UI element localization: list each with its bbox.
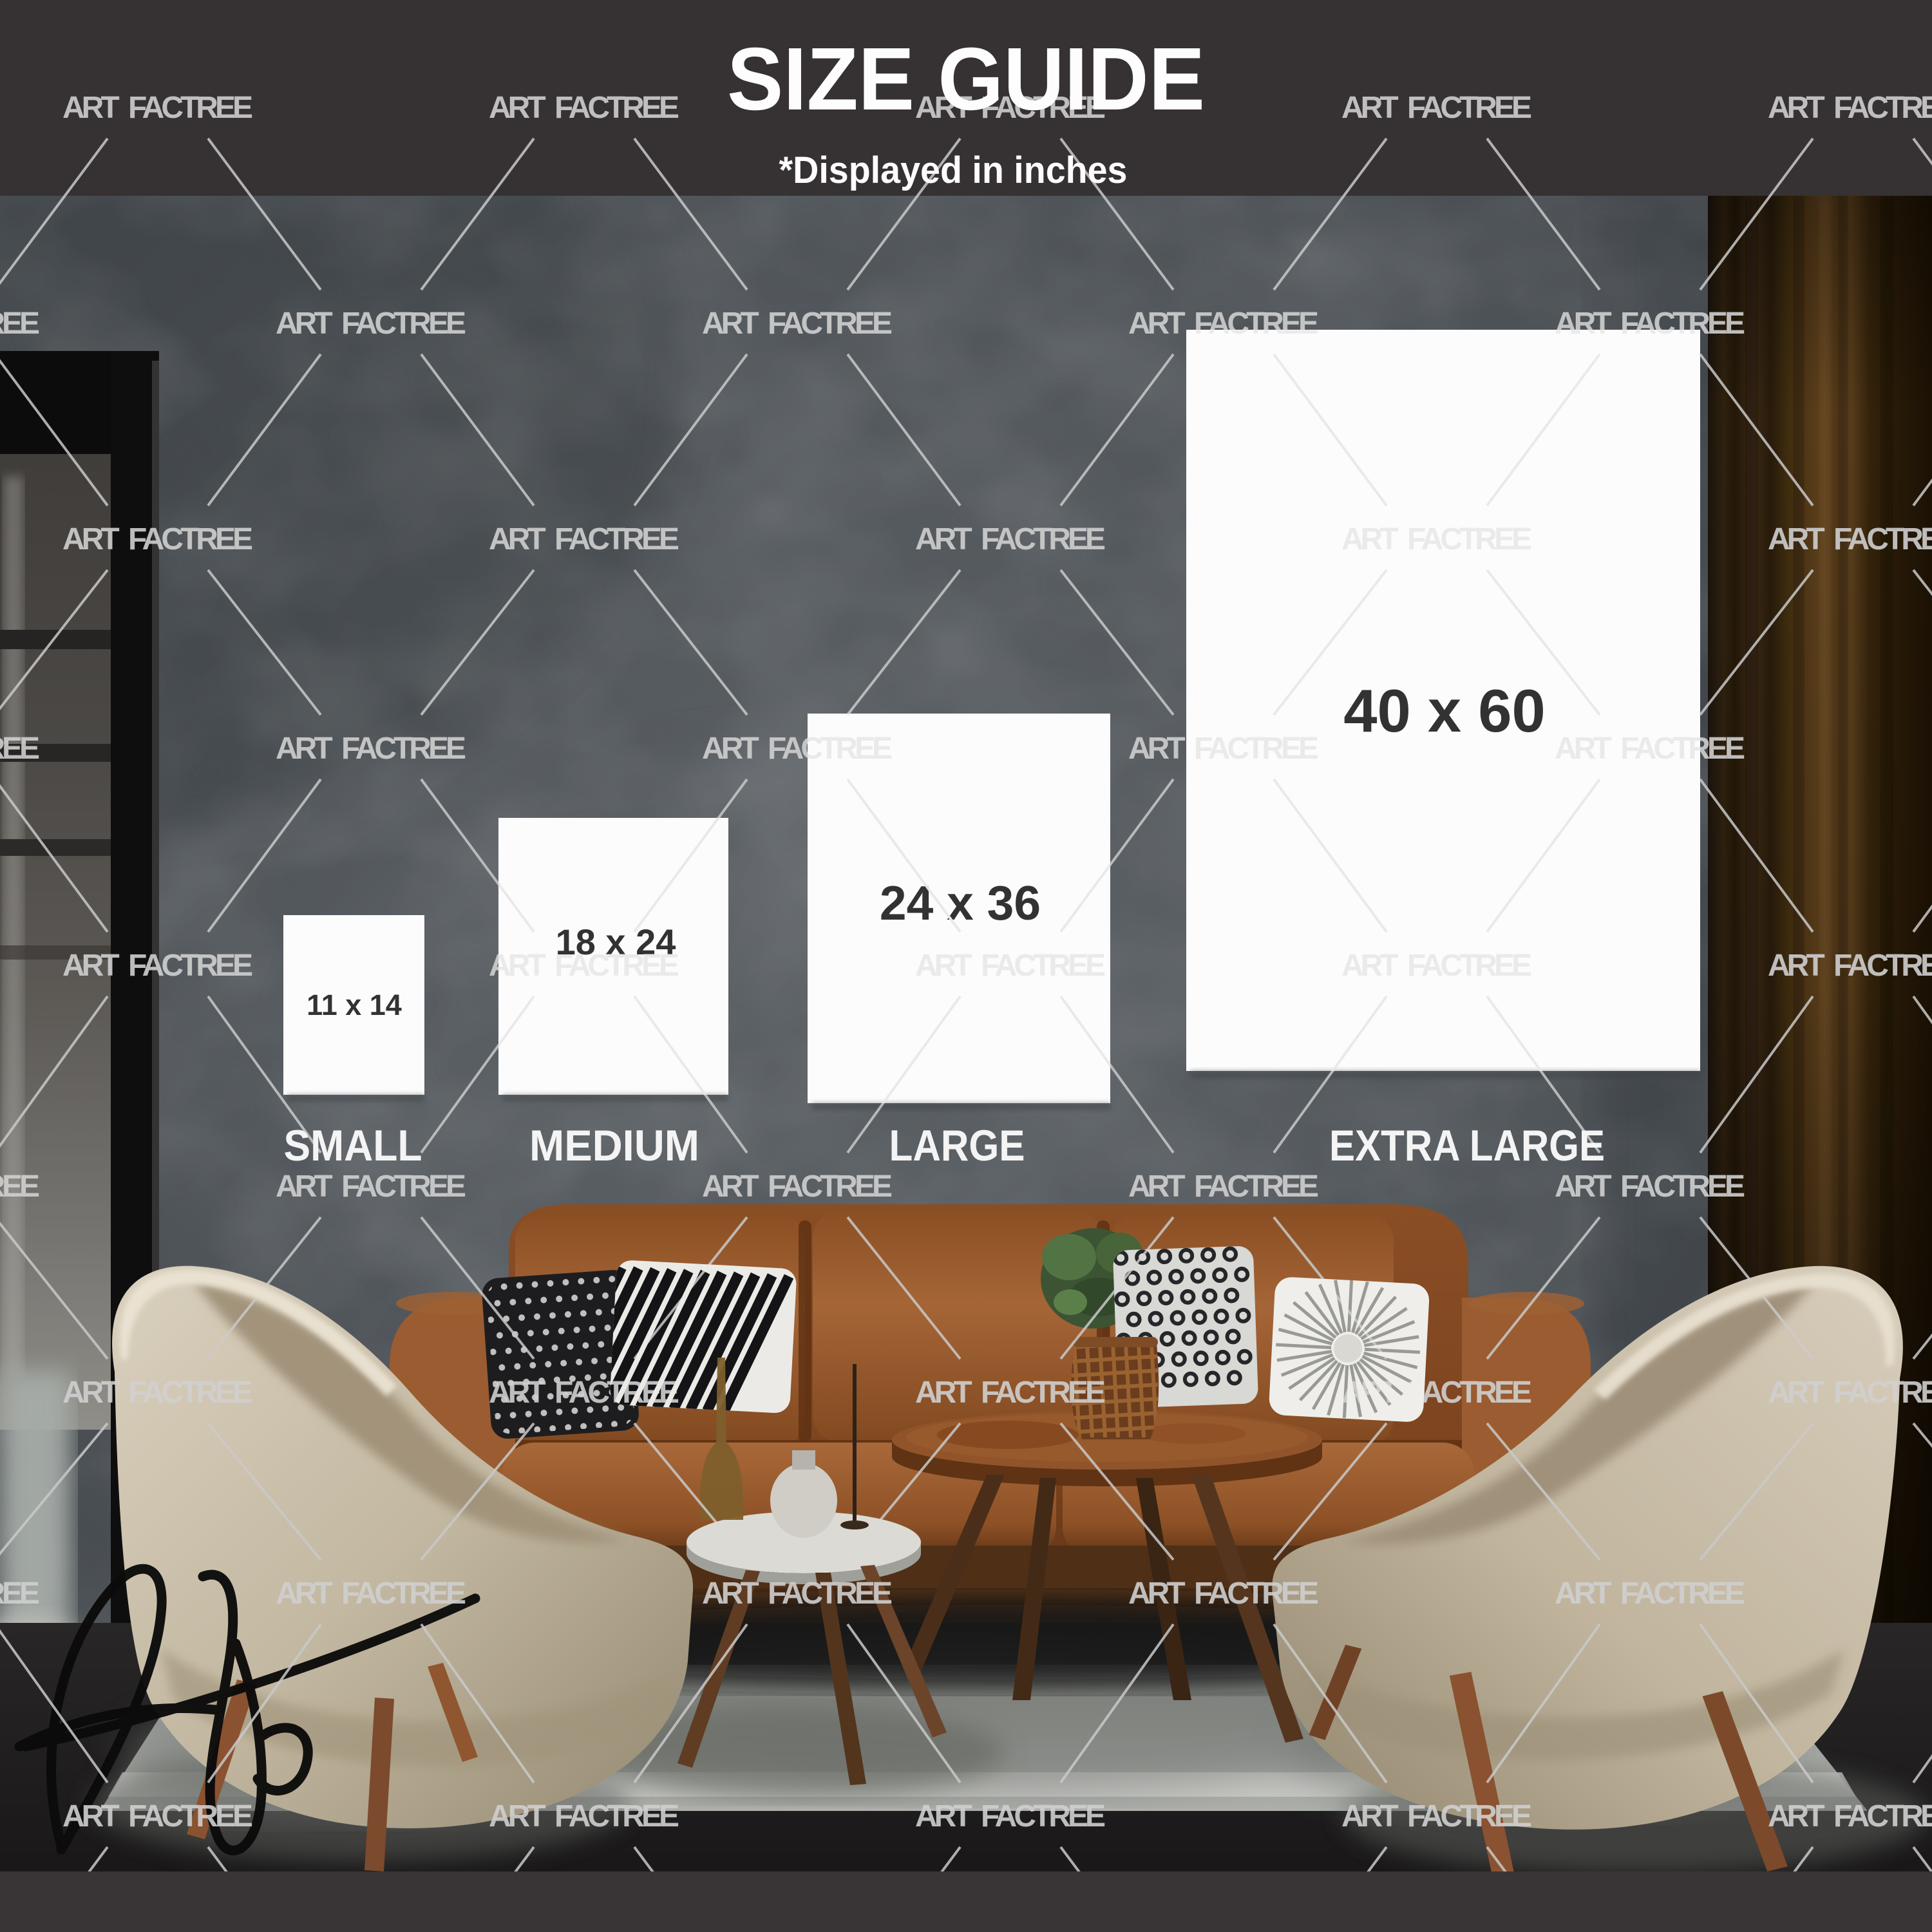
svg-text:ART FACTREE: ART FACTREE	[1341, 949, 1532, 983]
svg-text:ART FACTREE: ART FACTREE	[489, 1376, 679, 1410]
svg-text:ART FACTREE: ART FACTREE	[276, 1170, 466, 1204]
svg-text:ART FACTREE: ART FACTREE	[276, 732, 466, 766]
svg-text:ART FACTREE: ART FACTREE	[276, 307, 466, 341]
svg-text:24 x 36: 24 x 36	[880, 876, 1041, 930]
svg-text:LARGE: LARGE	[889, 1121, 1025, 1170]
svg-text:ART FACTREE: ART FACTREE	[62, 1376, 253, 1410]
svg-text:ART FACTREE: ART FACTREE	[915, 91, 1106, 125]
svg-text:ART FACTREE: ART FACTREE	[62, 91, 253, 125]
svg-text:ART FACTREE: ART FACTREE	[1555, 1170, 1745, 1204]
svg-text:ART FACTREE: ART FACTREE	[915, 1376, 1106, 1410]
svg-text:ART FACTREE: ART FACTREE	[1341, 1376, 1532, 1410]
svg-text:ART FACTREE: ART FACTREE	[1768, 522, 1932, 556]
svg-text:ART FACTREE: ART FACTREE	[702, 1170, 893, 1204]
svg-text:ART FACTREE: ART FACTREE	[915, 1799, 1106, 1833]
svg-text:ART FACTREE: ART FACTREE	[1128, 1577, 1319, 1611]
svg-text:ART FACTREE: ART FACTREE	[1768, 1799, 1932, 1833]
svg-text:ART FACTREE: ART FACTREE	[62, 522, 253, 556]
svg-text:ART FACTREE: ART FACTREE	[1768, 1376, 1932, 1410]
svg-text:ART FACTREE: ART FACTREE	[276, 1577, 466, 1611]
svg-text:ART FACTREE: ART FACTREE	[0, 732, 40, 766]
svg-text:ART FACTREE: ART FACTREE	[0, 307, 40, 341]
svg-text:ART FACTREE: ART FACTREE	[62, 1799, 253, 1833]
svg-text:ART FACTREE: ART FACTREE	[0, 1577, 40, 1611]
svg-text:ART FACTREE: ART FACTREE	[489, 949, 679, 983]
svg-text:MEDIUM: MEDIUM	[529, 1121, 699, 1170]
svg-text:ART FACTREE: ART FACTREE	[702, 307, 893, 341]
svg-text:EXTRA LARGE: EXTRA LARGE	[1329, 1121, 1605, 1170]
svg-text:ART FACTREE: ART FACTREE	[915, 522, 1106, 556]
svg-text:ART FACTREE: ART FACTREE	[489, 1799, 679, 1833]
svg-text:ART FACTREE: ART FACTREE	[0, 1170, 40, 1204]
svg-text:ART FACTREE: ART FACTREE	[62, 949, 253, 983]
svg-text:ART FACTREE: ART FACTREE	[489, 91, 679, 125]
svg-text:ART FACTREE: ART FACTREE	[489, 522, 679, 556]
svg-text:ART FACTREE: ART FACTREE	[702, 1577, 893, 1611]
svg-text:ART FACTREE: ART FACTREE	[1128, 1170, 1319, 1204]
svg-text:11 x 14: 11 x 14	[307, 989, 402, 1021]
svg-text:ART FACTREE: ART FACTREE	[1341, 91, 1532, 125]
svg-text:40 x 60: 40 x 60	[1343, 677, 1546, 744]
svg-text:ART FACTREE: ART FACTREE	[915, 949, 1106, 983]
svg-text:ART FACTREE: ART FACTREE	[1768, 91, 1932, 125]
svg-text:ART FACTREE: ART FACTREE	[1555, 1577, 1745, 1611]
svg-text:ART FACTREE: ART FACTREE	[1341, 522, 1532, 556]
svg-text:ART FACTREE: ART FACTREE	[1768, 949, 1932, 983]
svg-text:ART FACTREE: ART FACTREE	[1341, 1799, 1532, 1833]
